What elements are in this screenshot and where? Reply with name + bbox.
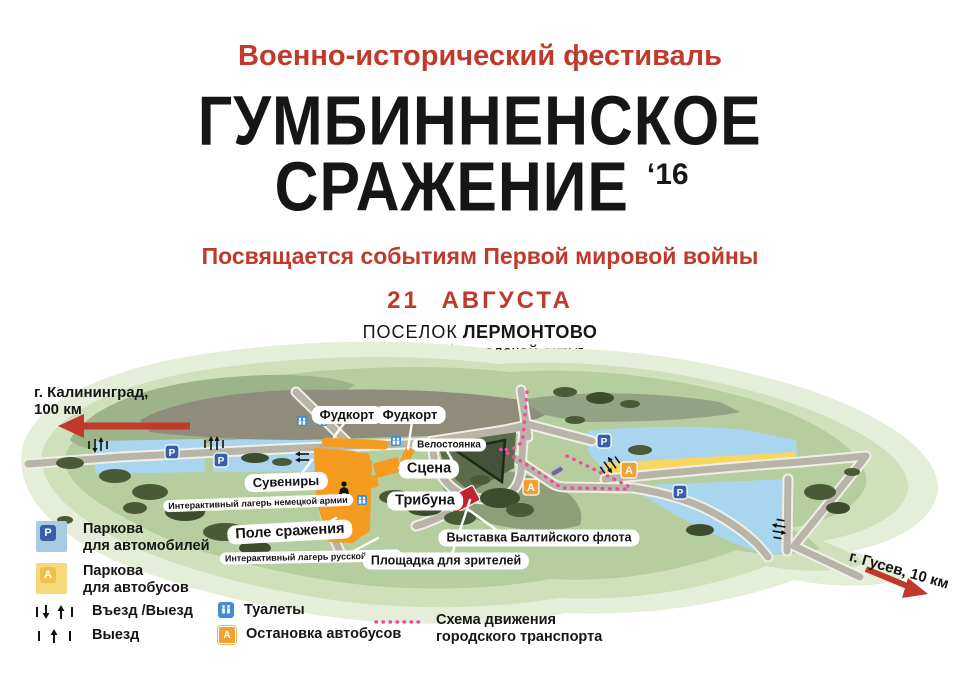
legend-bus-parking: А Паркова для автобусов	[36, 563, 189, 596]
label-fleet-exhibition: Выставка Балтийского флота	[438, 530, 639, 547]
label-foodcourt-2: Фудкорт	[375, 406, 446, 424]
parking-icon: P	[673, 485, 687, 499]
legend-entrance-exit: Въезд /Выезд	[34, 603, 193, 621]
legend-bus-parking-line2: для автобусов	[83, 580, 189, 597]
legend-car-parking-line2: для автомобилей	[83, 538, 210, 555]
toilets-icon	[297, 416, 307, 426]
legend-car-parking-line1: Паркова	[83, 521, 210, 538]
svg-text:А: А	[527, 482, 535, 494]
direction-kaliningrad-line1: г. Калининград,	[34, 384, 148, 401]
festival-poster: Военно-исторический фестиваль ГУМБИННЕНС…	[0, 0, 960, 678]
legend-toilets-label: Туалеты	[244, 602, 305, 619]
toilets-icon	[357, 495, 367, 505]
svg-text:P: P	[677, 488, 684, 499]
legend-bus-parking-line1: Паркова	[83, 563, 189, 580]
legend-transport-route: Схема движения городского транспорта	[374, 612, 602, 645]
legend-exit-label: Выезд	[92, 627, 139, 644]
svg-text:P: P	[601, 437, 608, 448]
parking-icon: P	[597, 434, 611, 448]
label-foodcourt-1: Фудкорт	[312, 406, 383, 424]
transport-route-icon	[374, 618, 422, 626]
bus-stop-icon: А	[523, 479, 539, 495]
bus-stop-icon: А	[621, 462, 637, 478]
bus-stop-icon: А	[218, 626, 236, 644]
car-parking-legend-icon: P	[36, 521, 67, 552]
entrance-exit-icon	[34, 603, 76, 621]
legend-transport-route-line1: Схема движения	[436, 612, 602, 629]
legend-exit: Выезд	[34, 627, 139, 645]
svg-text:P: P	[169, 448, 176, 459]
toilets-icon	[218, 602, 234, 618]
legend-car-parking: P Паркова для автомобилей	[36, 521, 210, 554]
legend-transport-route-line2: городского транспорта	[436, 629, 602, 646]
label-stage: Сцена	[399, 460, 459, 479]
legend-entrance-exit-label: Въезд /Выезд	[92, 603, 193, 620]
label-spectators: Площадка для зрителей	[363, 553, 529, 570]
direction-kaliningrad: г. Калининград, 100 км	[34, 384, 148, 419]
toilets-icon	[391, 436, 401, 446]
parking-icon: P	[214, 453, 228, 467]
label-souvenirs: Сувениры	[244, 472, 327, 493]
parking-icon: P	[40, 525, 56, 541]
exit-icon	[34, 627, 76, 645]
label-bike-parking: Велостоянка	[412, 439, 486, 452]
svg-text:P: P	[218, 456, 225, 467]
svg-text:А: А	[625, 465, 633, 477]
parking-icon: P	[165, 445, 179, 459]
legend-toilets: Туалеты	[218, 602, 305, 619]
label-tribune: Трибуна	[387, 492, 463, 511]
bus-icon: А	[40, 567, 56, 583]
direction-kaliningrad-line2: 100 км	[34, 401, 148, 418]
bus-parking-legend-icon: А	[36, 563, 67, 594]
